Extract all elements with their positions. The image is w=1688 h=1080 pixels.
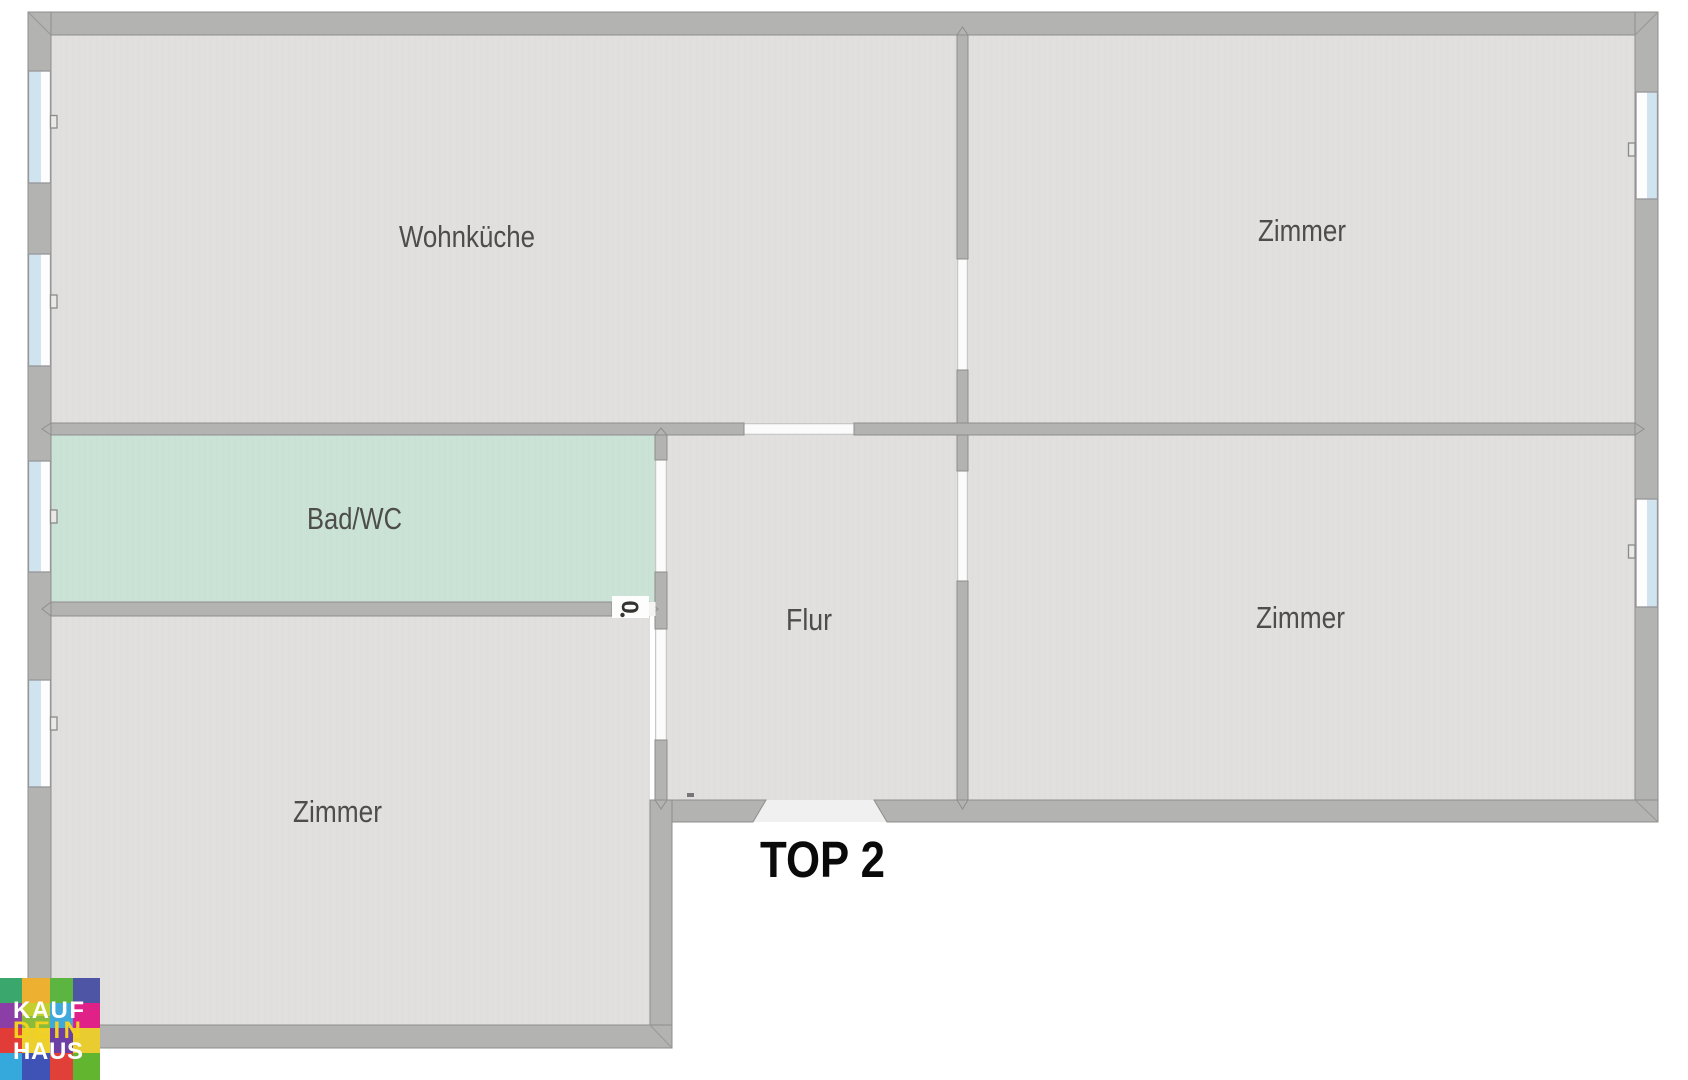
svg-text:Bad/WC: Bad/WC (307, 501, 402, 536)
svg-text:Zimmer: Zimmer (1258, 213, 1346, 248)
svg-text:Zimmer: Zimmer (293, 794, 382, 829)
svg-text:Wohnküche: Wohnküche (399, 219, 535, 254)
svg-text:HAUS: HAUS (13, 1038, 83, 1065)
svg-text:Flur: Flur (786, 602, 832, 637)
svg-text:0: 0 (618, 600, 645, 613)
svg-text:TOP 2: TOP 2 (760, 831, 885, 888)
svg-text:Zimmer: Zimmer (1256, 600, 1345, 635)
